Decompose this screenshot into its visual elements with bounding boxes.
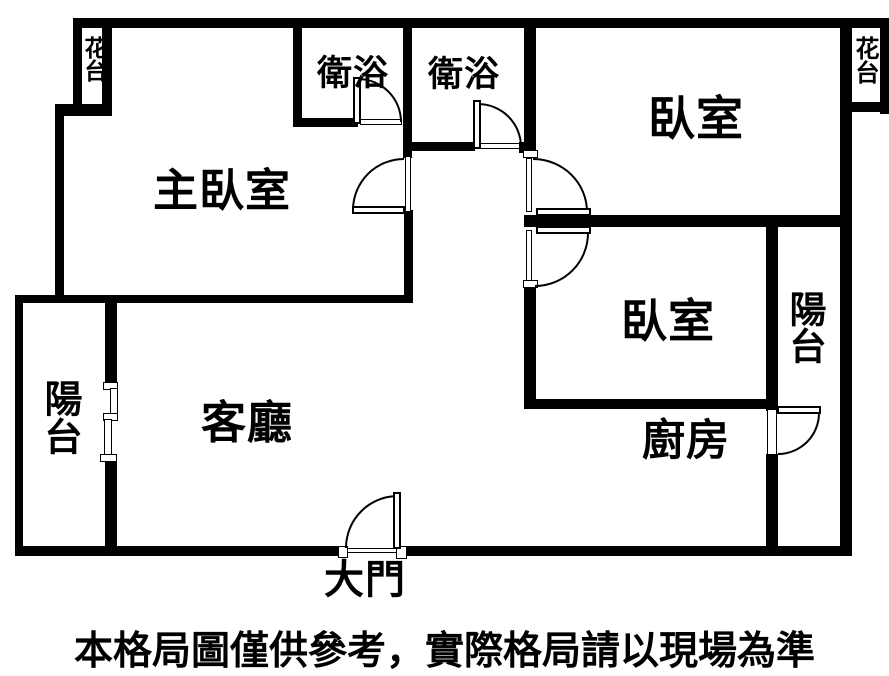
sliding-door-panel: [104, 419, 112, 457]
door-jamb: [405, 156, 411, 212]
door-jamb: [526, 230, 532, 286]
label-flower-bed-right: 花台: [853, 36, 877, 84]
wall: [524, 285, 536, 408]
wall: [105, 461, 117, 556]
door-leaf: [536, 226, 591, 234]
wall: [400, 546, 852, 556]
wall: [293, 118, 358, 127]
door-leaf: [352, 206, 405, 214]
label-main-entrance: 大門: [324, 560, 406, 601]
wall: [15, 546, 342, 556]
door-arc: [778, 413, 820, 455]
wall: [293, 28, 302, 127]
door-leaf: [473, 100, 481, 149]
wall: [524, 28, 536, 158]
label-balcony-right: 陽台: [786, 290, 823, 364]
wall: [15, 295, 23, 556]
label-bathroom-left: 衛浴: [317, 57, 389, 93]
door-arc: [478, 103, 522, 147]
wall: [766, 454, 778, 556]
wall: [766, 227, 778, 411]
door-leaf: [536, 208, 591, 216]
door-jamb: [523, 150, 538, 158]
wall: [880, 18, 889, 114]
wall: [840, 102, 889, 112]
label-kitchen: 廚房: [642, 420, 730, 464]
wall: [105, 295, 117, 385]
door-leaf: [777, 406, 821, 414]
wall: [73, 18, 889, 28]
wall: [412, 142, 475, 151]
label-master-bedroom: 主臥室: [153, 168, 291, 214]
door-leaf: [393, 492, 401, 549]
door-arc: [533, 158, 588, 212]
wall: [15, 295, 413, 303]
door-arc: [352, 158, 404, 210]
label-flower-bed-left: 花台: [81, 36, 104, 82]
sliding-door-cap: [100, 454, 117, 462]
wall: [403, 28, 412, 158]
wall: [840, 18, 852, 556]
disclaimer-text: 本格局圖僅供參考，實際格局請以現場為準: [0, 620, 889, 676]
door-jamb: [347, 548, 397, 553]
door-jamb: [526, 158, 532, 212]
wall: [524, 399, 778, 409]
wall: [404, 210, 413, 303]
label-bedroom-top-right: 臥室: [648, 96, 744, 144]
floor-plan: 花台 花台 主臥室 衛浴 衛浴 臥室 臥室 陽台 陽台 客廳 廚房 大門 本格局…: [0, 0, 889, 676]
label-bathroom-right: 衛浴: [428, 58, 500, 94]
wall: [55, 104, 64, 303]
label-bedroom-right: 臥室: [621, 298, 715, 345]
door-arc: [345, 495, 398, 548]
door-arc: [535, 233, 589, 287]
label-living-room: 客廳: [201, 400, 293, 446]
door-jamb: [767, 409, 777, 455]
label-balcony-left: 陽台: [41, 379, 79, 455]
